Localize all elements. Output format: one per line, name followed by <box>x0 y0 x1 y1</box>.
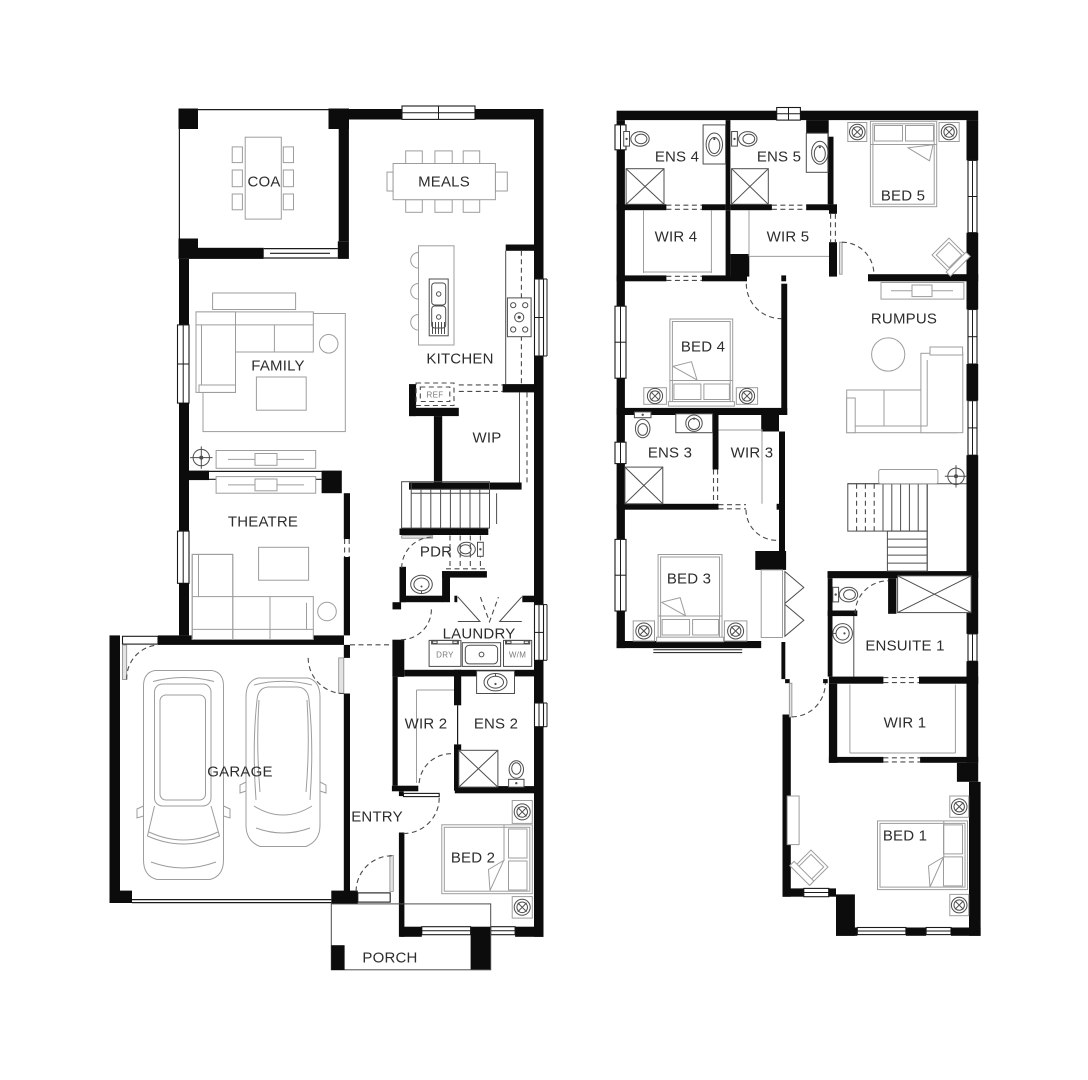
svg-text:W/M: W/M <box>509 651 526 660</box>
svg-text:BED 5: BED 5 <box>881 188 925 205</box>
svg-text:PORCH: PORCH <box>362 950 417 967</box>
svg-text:WIR 3: WIR 3 <box>731 445 774 462</box>
svg-text:RUMPUS: RUMPUS <box>871 311 937 328</box>
svg-text:LAUNDRY: LAUNDRY <box>443 626 516 643</box>
svg-text:KITCHEN: KITCHEN <box>426 351 493 368</box>
svg-text:PDR: PDR <box>420 544 452 561</box>
svg-text:ENS 4: ENS 4 <box>655 149 699 166</box>
svg-text:ENS 2: ENS 2 <box>474 716 518 733</box>
svg-text:FAMILY: FAMILY <box>251 358 304 375</box>
svg-text:WIR 2: WIR 2 <box>405 716 448 733</box>
svg-text:MEALS: MEALS <box>418 174 470 191</box>
svg-text:WIP: WIP <box>473 430 502 447</box>
svg-text:DRY: DRY <box>436 651 454 660</box>
svg-text:GARAGE: GARAGE <box>207 764 272 781</box>
svg-text:BED 3: BED 3 <box>667 571 711 588</box>
svg-text:ENSUITE 1: ENSUITE 1 <box>865 638 944 655</box>
svg-text:ENS 3: ENS 3 <box>648 445 692 462</box>
svg-text:REF: REF <box>427 391 444 400</box>
svg-text:WIR 5: WIR 5 <box>767 229 810 246</box>
svg-text:WIR 4: WIR 4 <box>655 229 698 246</box>
svg-text:ENTRY: ENTRY <box>351 809 403 826</box>
svg-text:THEATRE: THEATRE <box>228 514 298 531</box>
svg-text:BED 2: BED 2 <box>451 850 495 867</box>
svg-text:ENS 5: ENS 5 <box>757 149 801 166</box>
svg-text:WIR 1: WIR 1 <box>884 715 927 732</box>
svg-text:COA: COA <box>247 174 280 191</box>
svg-text:BED 1: BED 1 <box>883 828 927 845</box>
svg-text:BED 4: BED 4 <box>681 339 725 356</box>
